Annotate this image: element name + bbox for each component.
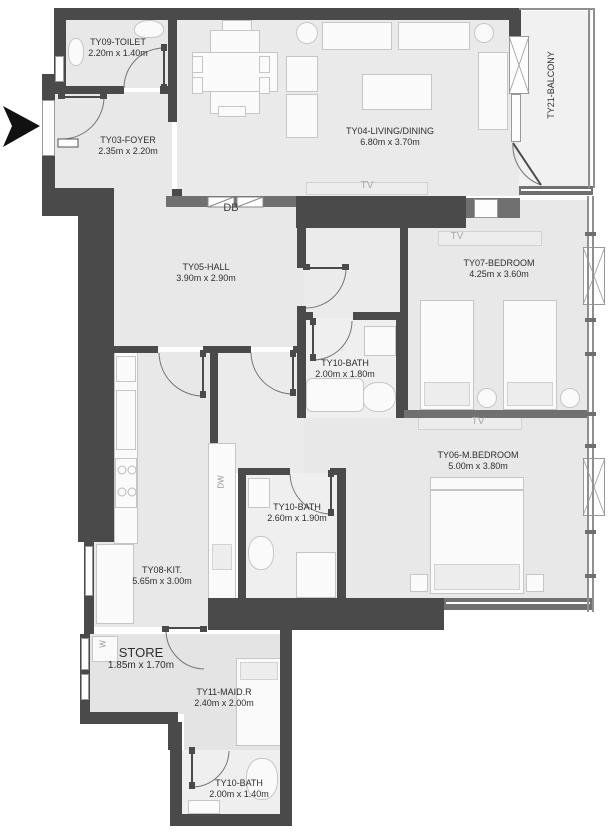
- wall-line: [521, 189, 591, 191]
- wall-mass: [296, 196, 466, 228]
- room-dims: 6.80m x 3.70m: [346, 137, 434, 148]
- floor-plan: TY09-TOILET 2.20m x 1.40m TY03-FOYER 2.3…: [0, 0, 610, 834]
- db-label: DB: [223, 202, 238, 214]
- kitchen-sink: [212, 544, 232, 570]
- dining-chair: [192, 56, 203, 73]
- dining-chair: [259, 56, 270, 73]
- fridge: [116, 356, 136, 382]
- wall: [58, 86, 124, 94]
- room-name: TY08-KIT.: [132, 565, 192, 576]
- mullion: [585, 232, 596, 236]
- hob: [115, 458, 137, 508]
- room-dims: 2.20m x 1.40m: [88, 48, 148, 59]
- wall: [80, 712, 178, 724]
- wall: [404, 410, 588, 418]
- room-label-foyer: TY03-FOYER 2.35m x 2.20m: [98, 135, 158, 157]
- wall: [58, 8, 520, 20]
- wall: [306, 312, 313, 320]
- bed-pillow: [424, 382, 470, 406]
- window-x-panel: [509, 36, 529, 94]
- wall: [396, 318, 408, 418]
- wall: [168, 722, 182, 750]
- room-label-balcony: TY21-BALCONY: [546, 51, 556, 119]
- room-name: TY10-BATH: [267, 502, 327, 513]
- washbasin: [188, 800, 220, 814]
- sofa: [398, 22, 470, 50]
- washbasin: [364, 326, 396, 356]
- room-label-bedroom1: TY07-BEDROOM 4.25m x 3.60m: [463, 258, 534, 280]
- room-dims: 2.00m x 1.80m: [315, 369, 375, 380]
- wall: [293, 346, 304, 353]
- pouf: [474, 23, 494, 43]
- entry-arrow-icon: [3, 106, 40, 147]
- room-name: TY11-MAID.R: [194, 687, 254, 698]
- w-label: W: [99, 640, 108, 648]
- wall-mass: [42, 188, 114, 216]
- tv-label: TV: [451, 231, 464, 242]
- wall: [203, 346, 251, 353]
- glazing-line: [587, 196, 589, 612]
- mullion: [585, 574, 596, 578]
- mullion: [585, 444, 596, 448]
- sofa-corner: [286, 56, 318, 92]
- room-label-living: TY04-LIVING/DINING 6.80m x 3.70m: [346, 126, 434, 148]
- side-table: [410, 574, 428, 592]
- dw-label: DW: [217, 475, 226, 488]
- room-dims: 1.85m x 1.70m: [108, 660, 174, 671]
- wall: [238, 468, 246, 600]
- wall: [170, 814, 292, 826]
- dining-chair: [259, 77, 270, 94]
- window: [511, 94, 521, 142]
- dining-chair: [218, 106, 246, 117]
- wall-line: [446, 602, 590, 604]
- bed-pillow: [240, 662, 278, 680]
- sofa: [322, 22, 392, 50]
- wall: [114, 346, 158, 353]
- wall: [210, 353, 218, 443]
- wc: [248, 536, 274, 570]
- room-name: TY10-BATH: [209, 778, 269, 789]
- room-label-toilet: TY09-TOILET 2.20m x 1.40m: [88, 37, 148, 59]
- bed-pillow: [434, 564, 520, 590]
- dining-chair: [192, 77, 203, 94]
- entry-opening: [42, 100, 55, 156]
- wall: [280, 630, 292, 826]
- glazing-line: [592, 196, 594, 612]
- wall: [297, 228, 306, 268]
- shower: [296, 552, 336, 598]
- room-label-store: STORE 1.85m x 1.70m: [108, 646, 174, 671]
- wall: [42, 74, 55, 100]
- room-label-bath2: TY10-BATH 2.60m x 1.90m: [267, 502, 327, 524]
- room-dims: 5.65m x 3.00m: [132, 576, 192, 587]
- room-name: TY10-BATH: [315, 358, 375, 369]
- room-dims: 3.90m x 2.90m: [176, 273, 236, 284]
- room-name: TY06-M.BEDROOM: [437, 450, 518, 461]
- wall: [168, 8, 177, 122]
- wall-column: [78, 216, 114, 542]
- room-label-kitchen: TY08-KIT. 5.65m x 3.00m: [132, 565, 192, 587]
- washbasin: [134, 20, 164, 38]
- wall: [42, 156, 55, 192]
- room-name: STORE: [108, 646, 174, 660]
- kitchen-cabinet: [116, 390, 136, 450]
- kitchen-counter-lower: [96, 544, 134, 624]
- wall: [297, 318, 306, 418]
- window: [81, 638, 89, 670]
- window: [85, 546, 93, 596]
- wall: [337, 468, 346, 600]
- wall: [444, 598, 592, 610]
- window: [81, 674, 89, 700]
- wall: [172, 189, 182, 196]
- room-name: TY04-LIVING/DINING: [346, 126, 434, 137]
- side-table: [477, 388, 497, 408]
- floor-vestibule: [304, 226, 408, 318]
- pouf: [296, 22, 318, 44]
- side-table: [560, 388, 580, 408]
- window: [55, 56, 64, 82]
- glazing-line: [519, 8, 593, 10]
- dining-chair: [222, 20, 252, 31]
- wall-mass: [208, 598, 444, 630]
- glazing-line: [593, 8, 595, 188]
- wall: [400, 228, 408, 318]
- room-dims: 2.00m x 1.40m: [209, 789, 269, 800]
- room-name: TY03-FOYER: [98, 135, 158, 146]
- room-dims: 2.60m x 1.90m: [267, 513, 327, 524]
- room-label-master: TY06-M.BEDROOM 5.00m x 3.80m: [437, 450, 518, 472]
- sofa: [478, 52, 508, 130]
- wall: [297, 306, 306, 318]
- room-label-bath3: TY10-BATH 2.00m x 1.40m: [209, 778, 269, 800]
- bathtub: [306, 378, 364, 412]
- room-name: TY07-BEDROOM: [463, 258, 534, 269]
- coffee-table: [362, 74, 432, 110]
- wall: [509, 8, 521, 38]
- mullion: [585, 412, 596, 416]
- shaft-column: [474, 199, 498, 218]
- side-table: [526, 574, 544, 592]
- kitchen-counter-right: [208, 443, 236, 600]
- glazing-line: [588, 8, 590, 188]
- bed-pillow: [507, 382, 553, 406]
- bed-bench: [430, 477, 524, 490]
- room-dims: 4.25m x 3.60m: [463, 269, 534, 280]
- room-label-bath1: TY10-BATH 2.00m x 1.80m: [315, 358, 375, 380]
- room-label-hall: TY05-HALL 3.90m x 2.90m: [176, 262, 236, 284]
- tv-label: TV: [361, 180, 374, 191]
- room-dims: 2.40m x 2.00m: [194, 698, 254, 709]
- sofa-corner: [286, 94, 318, 138]
- room-name: TY21-BALCONY: [546, 51, 556, 119]
- tv-label: TV: [472, 416, 485, 427]
- wc: [68, 38, 84, 66]
- mullion: [585, 530, 596, 534]
- tv-cabinet: [418, 416, 522, 430]
- mullion: [585, 318, 596, 322]
- room-dims: 2.35m x 2.20m: [98, 146, 158, 157]
- wall: [238, 468, 290, 475]
- wc: [362, 382, 396, 412]
- wall: [170, 750, 182, 822]
- room-name: TY09-TOILET: [88, 37, 148, 48]
- room-dims: 5.00m x 3.80m: [437, 461, 518, 472]
- room-label-maid: TY11-MAID.R 2.40m x 2.00m: [194, 687, 254, 709]
- mullion: [585, 352, 596, 356]
- room-name: TY05-HALL: [176, 262, 236, 273]
